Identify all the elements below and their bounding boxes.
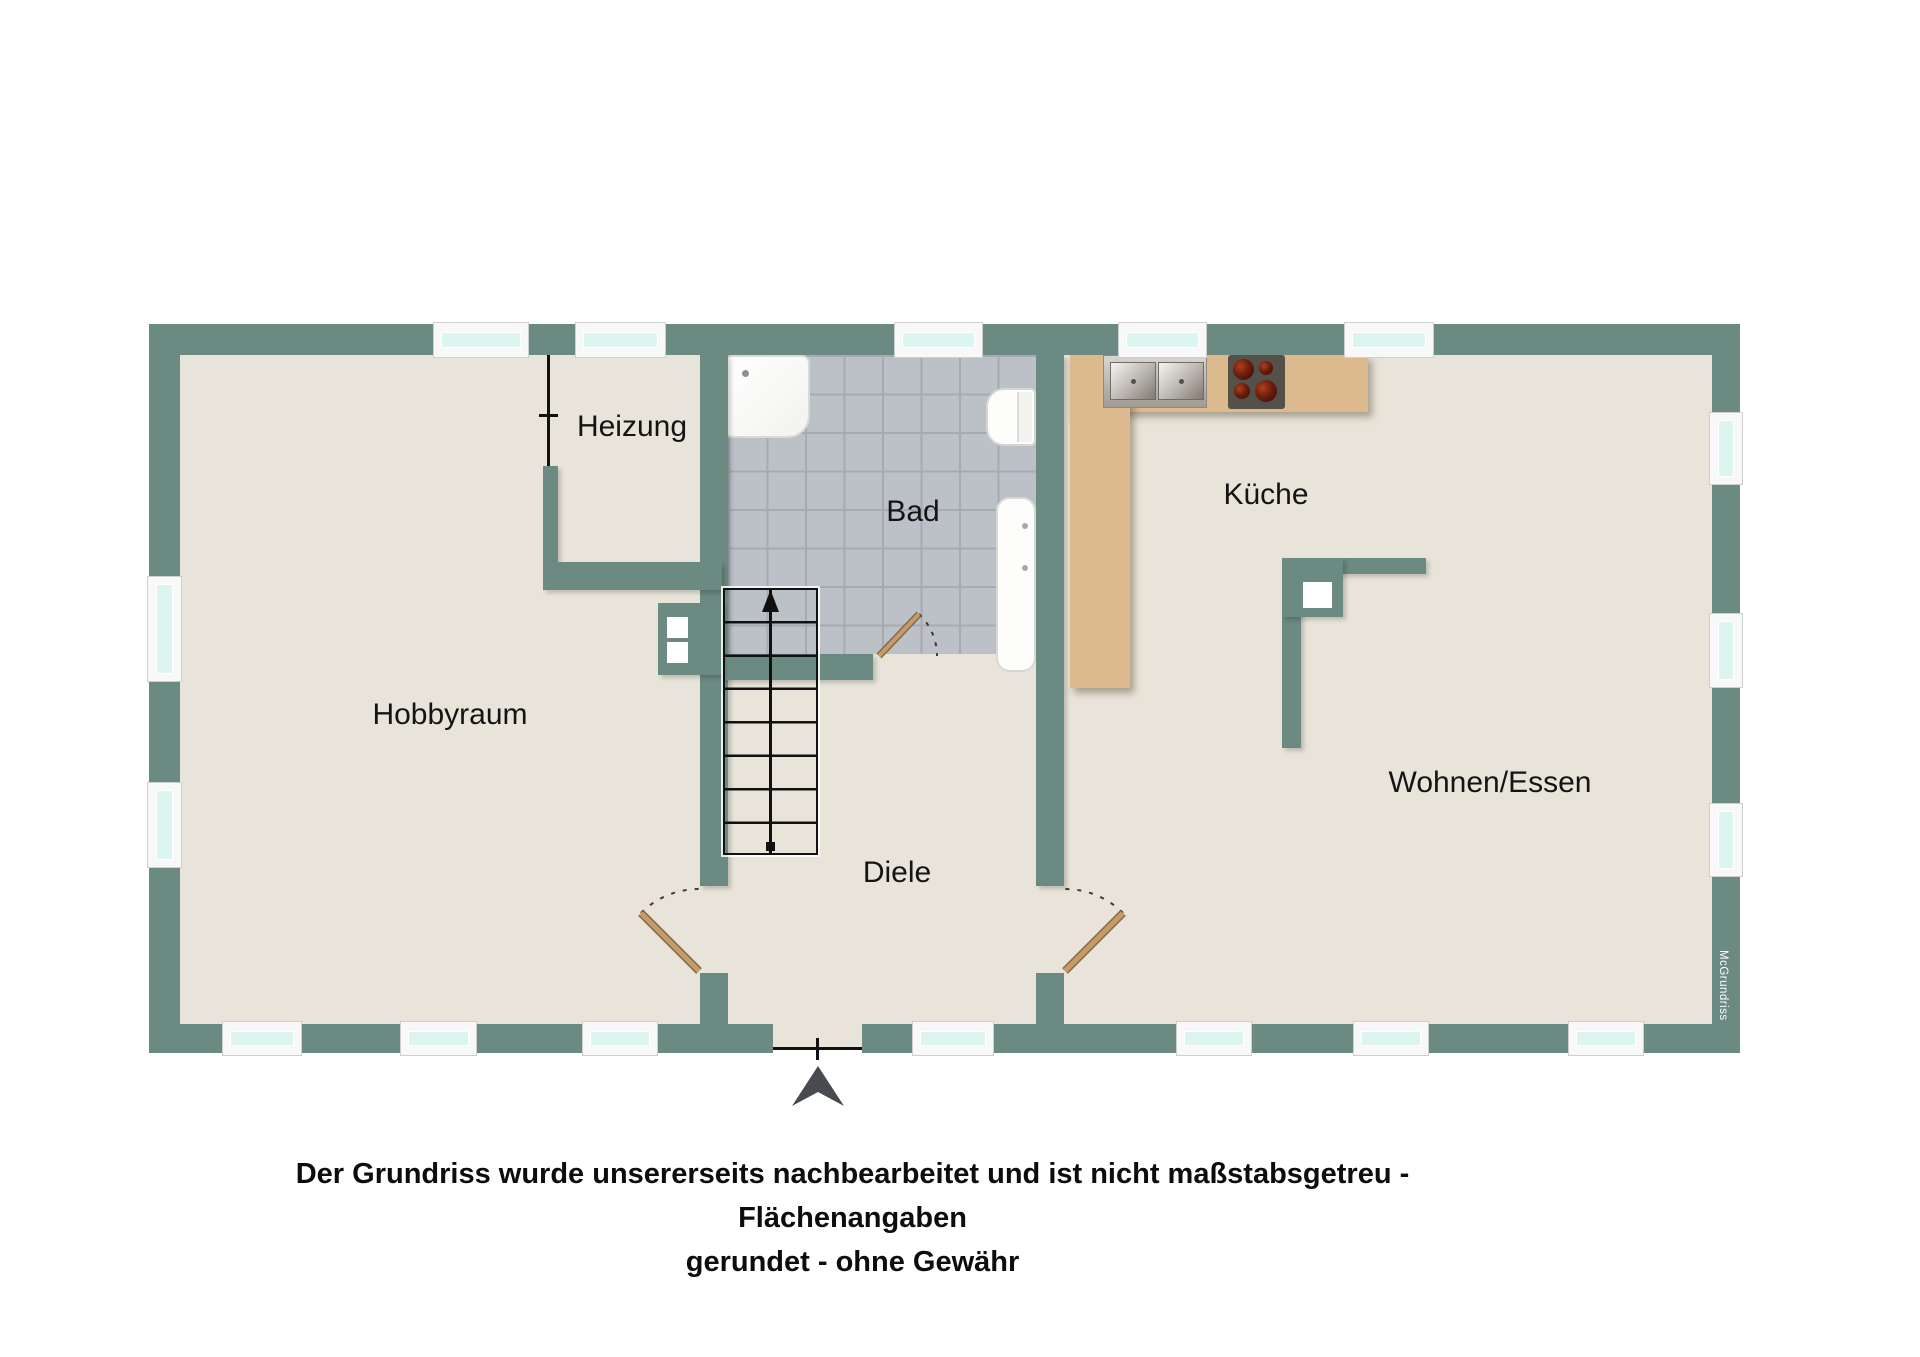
heating-shaft: [658, 603, 722, 675]
stairs-center-line: [769, 590, 772, 853]
disclaimer-line2: gerundet - ohne Gewähr: [180, 1240, 1525, 1284]
heizung-partition-tick: [539, 414, 558, 417]
entrance-door-tick: [816, 1038, 819, 1060]
shower-drain-icon: [742, 370, 749, 377]
wall-heizung-vertical: [543, 466, 558, 562]
shaft-opening: [667, 617, 688, 638]
window: [222, 1021, 302, 1056]
watermark-mcgrundriss: McGrundriss: [1717, 950, 1729, 1022]
window: [582, 1021, 658, 1056]
room-label-hobbyraum: Hobbyraum: [372, 698, 527, 732]
bathtub-drain-icon: [1022, 565, 1028, 571]
window: [1353, 1021, 1429, 1056]
toilet: [986, 388, 1036, 446]
room-label-wohnen-essen: Wohnen/Essen: [1389, 766, 1592, 800]
kitchen-double-sink: [1103, 355, 1207, 408]
chimney-block: [1282, 558, 1343, 617]
window: [1709, 613, 1743, 688]
toilet-tank: [1017, 392, 1032, 442]
room-label-bad: Bad: [886, 495, 939, 529]
burner-icon: [1259, 361, 1273, 375]
window: [575, 322, 666, 358]
wall-hall-right-stub: [1036, 973, 1064, 1024]
room-label-kueche: Küche: [1223, 478, 1308, 512]
chimney-flue: [1303, 582, 1332, 608]
window: [1118, 322, 1207, 358]
room-label-heizung: Heizung: [577, 410, 687, 444]
window: [894, 322, 983, 358]
wall-left: [149, 324, 180, 1053]
room-label-diele: Diele: [863, 856, 931, 890]
burner-icon: [1255, 380, 1277, 402]
wall-hall-right-upper: [1036, 355, 1064, 886]
cooktop: [1228, 355, 1285, 409]
bathtub: [996, 497, 1036, 672]
window: [1568, 1021, 1644, 1056]
wall-hall-left-stub: [700, 973, 728, 1024]
disclaimer-text: Der Grundriss wurde unsererseits nachbea…: [180, 1152, 1525, 1284]
window: [1176, 1021, 1252, 1056]
entrance-arrow: [792, 1066, 844, 1106]
shaft-opening: [667, 642, 688, 663]
floorplan-canvas: Hobbyraum Heizung Bad Küche Wohnen/Essen…: [0, 0, 1920, 1357]
window: [147, 782, 182, 868]
bathtub-faucet-icon: [1022, 523, 1028, 529]
window: [1344, 322, 1434, 358]
sink-basin-right: [1158, 362, 1204, 400]
burner-icon: [1234, 383, 1250, 399]
window: [1709, 412, 1743, 485]
stairs: [723, 588, 818, 855]
disclaimer-line1: Der Grundriss wurde unsererseits nachbea…: [180, 1152, 1525, 1240]
window: [1709, 803, 1743, 877]
burner-icon: [1233, 359, 1254, 380]
window: [433, 322, 529, 358]
window: [147, 576, 182, 682]
heizung-partition-line: [547, 355, 550, 466]
wall-heizung-bottom: [543, 562, 722, 590]
window: [912, 1021, 994, 1056]
shower-tray: [724, 355, 810, 438]
sink-basin-left: [1110, 362, 1156, 400]
window: [400, 1021, 477, 1056]
